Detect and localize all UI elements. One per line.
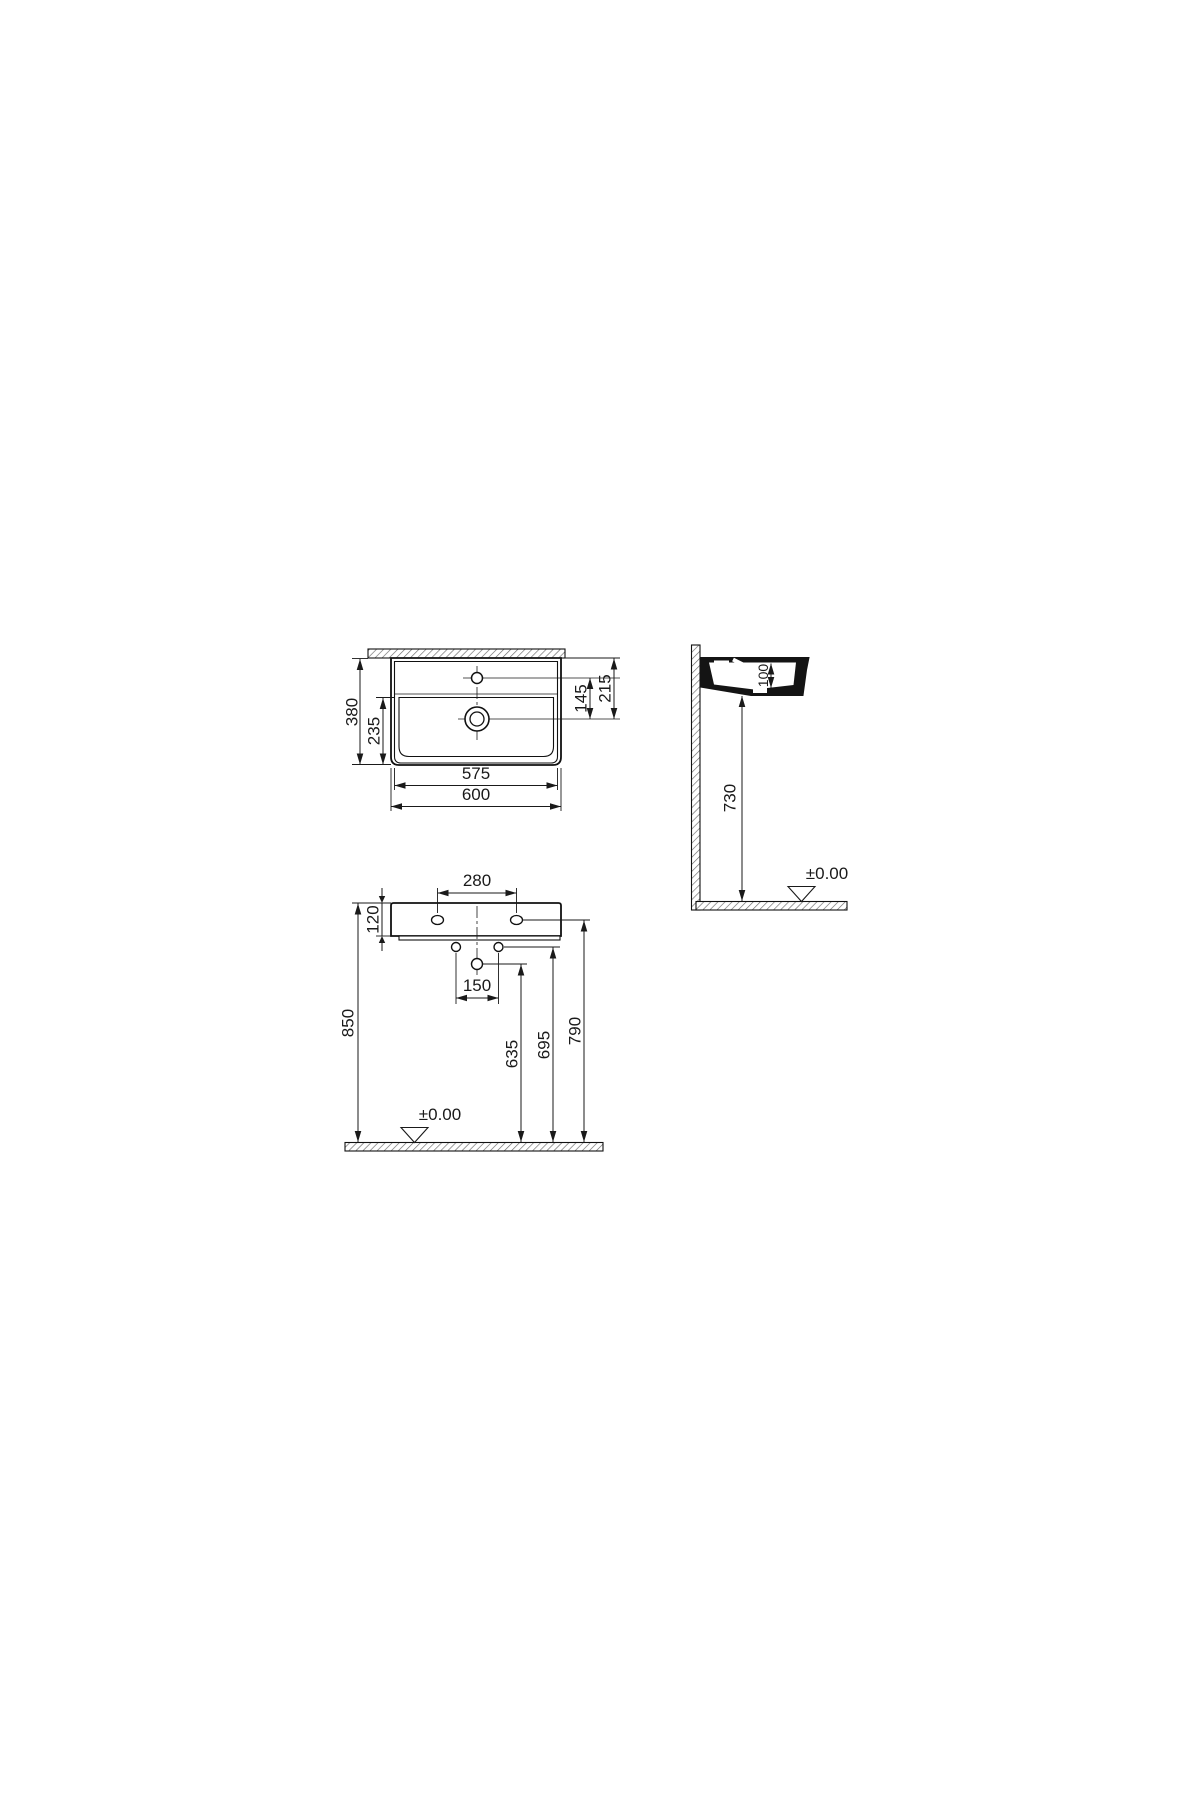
plan-view: 380 235 145 215 575 (343, 649, 621, 811)
front-waste-outlet (472, 959, 483, 970)
plan-drain-inner (470, 712, 484, 726)
front-floor-datum: ±0.00 (401, 1105, 461, 1143)
plan-dim-bowl-depth: 235 (365, 698, 395, 765)
side-dim-bowl-inner-depth-label: 100 (755, 664, 771, 688)
front-datum-label: ±0.00 (419, 1105, 461, 1124)
front-dim-supply-spacing-label: 150 (463, 976, 491, 995)
front-basin-bottom-lip (399, 936, 560, 940)
side-datum-label: ±0.00 (806, 864, 848, 883)
side-datum-triangle-icon (788, 887, 815, 902)
technical-drawing-page: 380 235 145 215 575 (0, 0, 1200, 1800)
side-dim-bowl-inner-depth: 100 (755, 664, 771, 689)
plan-dim-rear-to-drain-label: 215 (596, 674, 615, 702)
front-dim-apron-height-label: 120 (364, 905, 383, 933)
front-dim-rim-height: 850 (339, 904, 359, 1143)
front-datum-triangle-icon (401, 1128, 428, 1143)
plan-dim-overall-depth-label: 380 (343, 698, 362, 726)
front-dim-supply-height-label: 695 (535, 1031, 554, 1059)
plan-dim-overall-depth: 380 (343, 659, 392, 765)
side-basin-bowl-cavity (709, 663, 796, 690)
front-supply-hole-left (452, 943, 461, 952)
plan-wall-section (368, 649, 565, 658)
front-dim-rim-height-label: 850 (339, 1009, 358, 1037)
front-supply-hole-right (494, 943, 503, 952)
front-basin-body (391, 903, 561, 936)
side-drain-recess (753, 688, 767, 693)
front-fixing-hole-right (511, 916, 523, 925)
side-dim-underside-height-label: 730 (721, 784, 740, 812)
side-wall-section (692, 645, 701, 910)
side-overflow-slot (714, 661, 729, 666)
plan-dim-tap-to-drain-label: 145 (572, 684, 591, 712)
front-dim-fixing-height-label: 790 (566, 1017, 585, 1045)
side-floor-section (696, 902, 847, 911)
side-floor-datum: ±0.00 (788, 864, 848, 902)
side-view: 100 730 ±0.00 (692, 645, 849, 910)
plan-dim-bowl-width-label: 575 (462, 764, 490, 783)
side-dim-underside-height: 730 (721, 696, 743, 901)
front-view: 280 120 150 850 635 (339, 871, 604, 1151)
front-dim-fixing-height: 790 (523, 920, 590, 1142)
front-fixing-hole-left (432, 916, 444, 925)
plan-dim-bowl-depth-label: 235 (365, 717, 384, 745)
front-dim-waste-height-label: 635 (503, 1040, 522, 1068)
plan-dim-tap-to-drain: 145 (572, 678, 591, 719)
plan-dim-overall-width-label: 600 (462, 785, 490, 804)
plan-tap-hole (472, 673, 483, 684)
front-floor-section (345, 1143, 603, 1152)
front-dim-fixing-spacing-label: 280 (463, 871, 491, 890)
washbasin-dimension-drawing: 380 235 145 215 575 (0, 0, 1200, 1800)
